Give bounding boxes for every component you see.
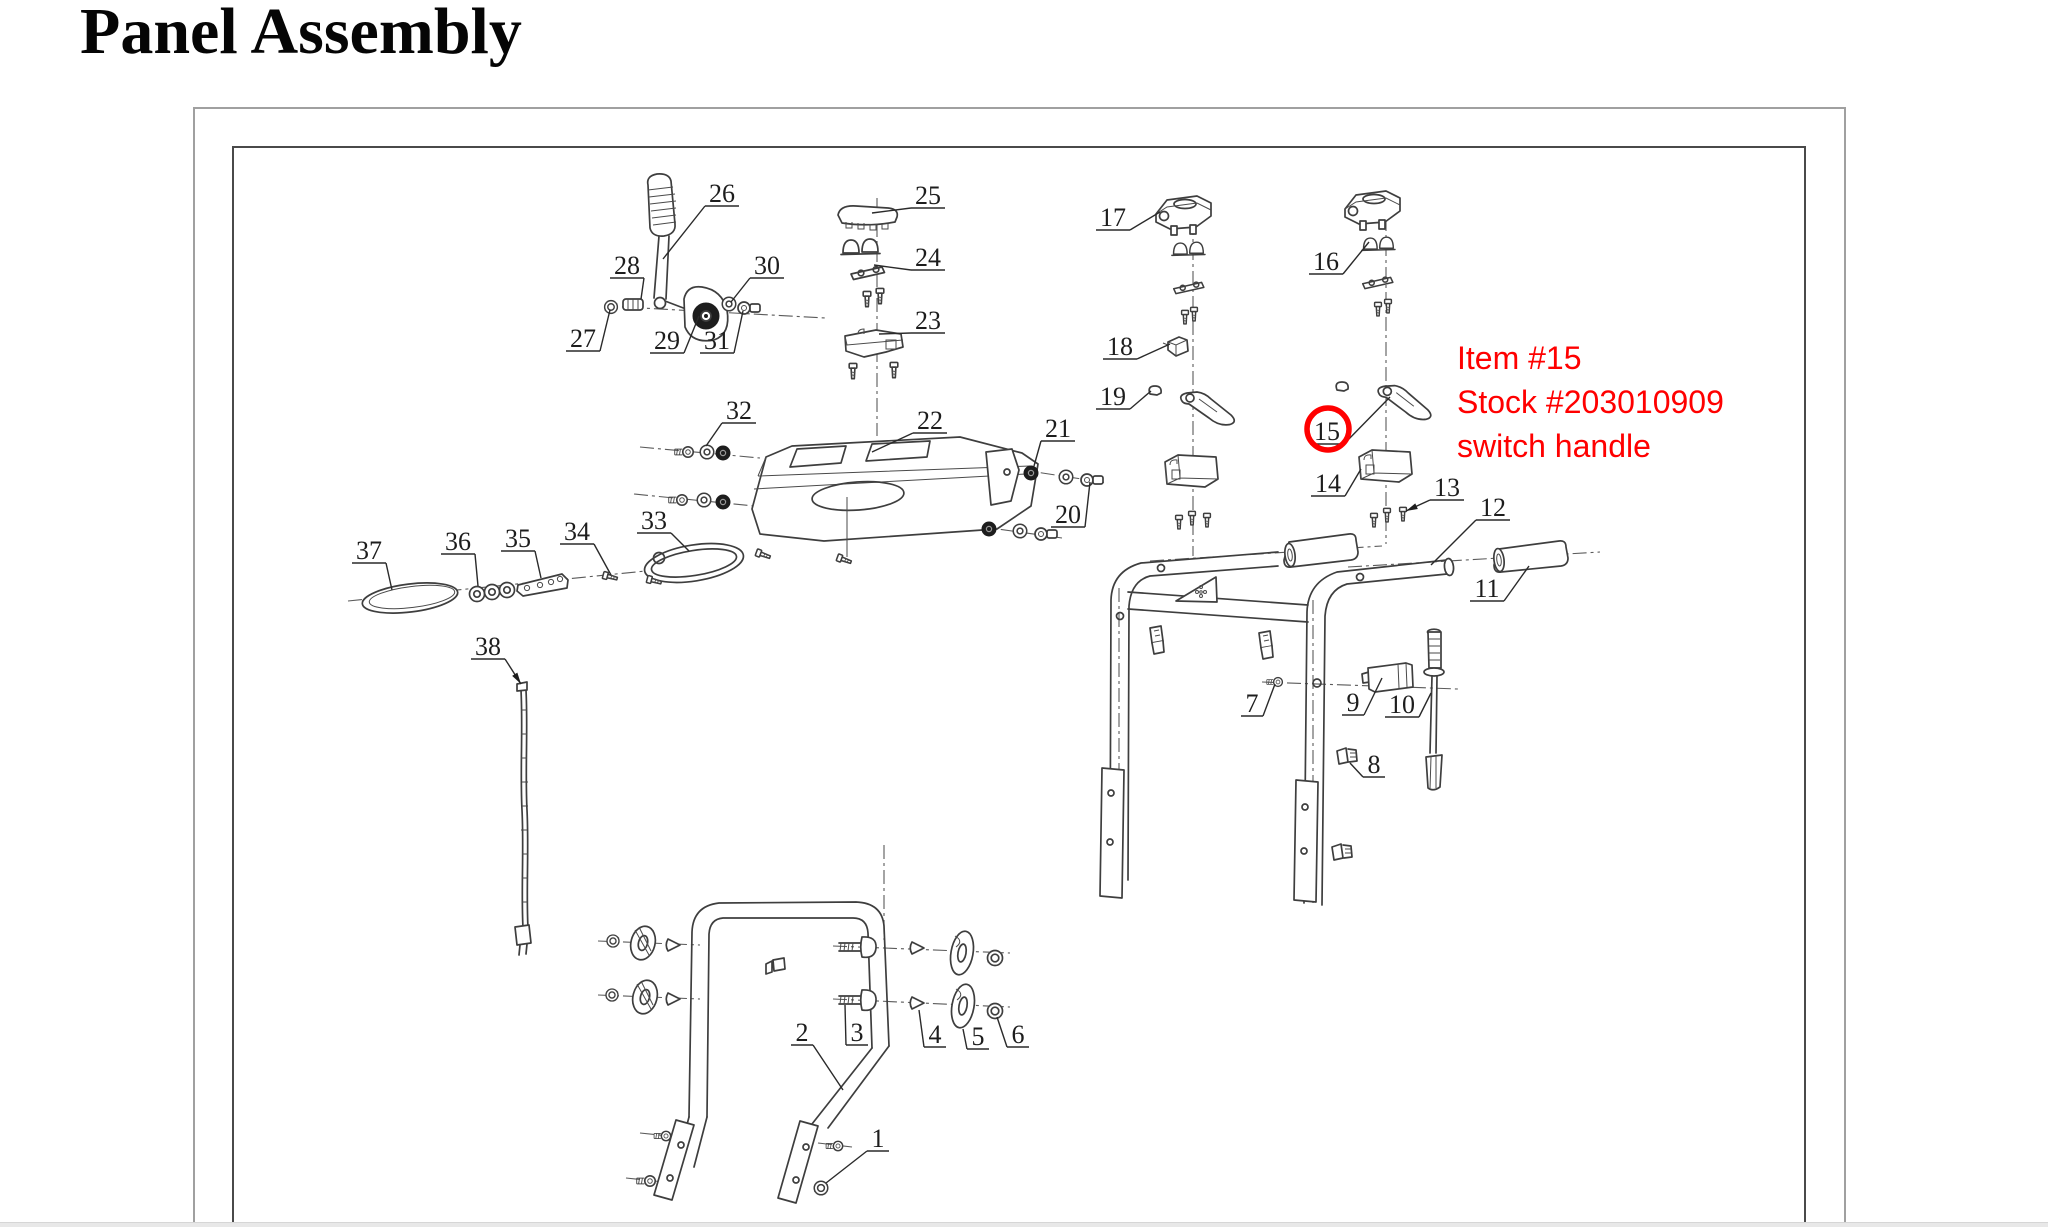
svg-text:25: 25 (915, 181, 941, 210)
svg-text:13: 13 (1434, 473, 1460, 502)
svg-text:10: 10 (1389, 690, 1415, 719)
svg-text:20: 20 (1055, 500, 1081, 529)
svg-text:33: 33 (641, 506, 667, 535)
lower-handlebar-assembly (606, 902, 1003, 1203)
exploded-parts-diagram: 1234567891011121314151617181920212223242… (0, 0, 2048, 1227)
svg-text:24: 24 (915, 243, 941, 272)
part-label-10: 10 (1385, 690, 1431, 719)
part-label-20: 20 (1051, 482, 1090, 529)
part-label-2: 2 (791, 1018, 843, 1090)
part-label-30: 30 (731, 251, 784, 302)
svg-text:26: 26 (709, 179, 735, 208)
page: Panel Assembly (0, 0, 2048, 1227)
svg-text:12: 12 (1480, 493, 1506, 522)
svg-text:8: 8 (1368, 750, 1381, 779)
panel-cover-column (838, 206, 903, 379)
svg-text:4: 4 (929, 1020, 942, 1049)
part-label-6: 6 (997, 1017, 1029, 1049)
part-label-14: 14 (1311, 469, 1361, 498)
svg-text:17: 17 (1100, 203, 1126, 232)
part-label-19: 19 (1096, 382, 1151, 411)
part-label-23: 23 (879, 306, 945, 335)
part-label-17: 17 (1096, 203, 1160, 232)
svg-text:19: 19 (1100, 382, 1126, 411)
svg-text:32: 32 (726, 396, 752, 425)
part-label-27: 27 (566, 310, 610, 353)
svg-text:28: 28 (614, 251, 640, 280)
svg-text:18: 18 (1107, 332, 1133, 361)
svg-text:1: 1 (872, 1124, 885, 1153)
part-label-38: 38 (471, 632, 521, 684)
switch-columns (1149, 191, 1432, 529)
part-label-7: 7 (1241, 684, 1275, 718)
part-label-33: 33 (637, 506, 689, 551)
svg-text:11: 11 (1474, 574, 1499, 603)
part-label-34: 34 (560, 517, 611, 575)
svg-text:23: 23 (915, 306, 941, 335)
svg-text:29: 29 (654, 326, 680, 355)
part-label-13: 13 (1406, 473, 1464, 511)
svg-text:9: 9 (1347, 688, 1360, 717)
gasket-and-bracket-row (361, 537, 747, 955)
svg-text:34: 34 (564, 517, 590, 546)
svg-text:37: 37 (356, 536, 382, 565)
part-label-1: 1 (826, 1124, 889, 1183)
svg-text:6: 6 (1012, 1020, 1025, 1049)
svg-text:7: 7 (1246, 689, 1259, 718)
svg-text:2: 2 (796, 1018, 809, 1047)
svg-text:5: 5 (972, 1022, 985, 1051)
part-label-24: 24 (874, 243, 945, 272)
part-label-32: 32 (706, 396, 756, 446)
part-label-36: 36 (441, 527, 478, 586)
window-bottom-scrollbar[interactable] (0, 1222, 2048, 1227)
svg-text:16: 16 (1313, 247, 1339, 276)
part-label-3: 3 (845, 1005, 868, 1047)
svg-text:38: 38 (475, 632, 501, 661)
svg-text:35: 35 (505, 524, 531, 553)
part-label-28: 28 (610, 251, 644, 299)
part-label-16: 16 (1309, 242, 1369, 276)
svg-text:15: 15 (1314, 417, 1340, 446)
part-label-5: 5 (963, 1022, 989, 1051)
part-label-4: 4 (919, 1010, 946, 1049)
svg-text:36: 36 (445, 527, 471, 556)
svg-text:27: 27 (570, 324, 596, 353)
part-label-37: 37 (352, 536, 392, 590)
svg-text:21: 21 (1045, 414, 1071, 443)
annotation-text: Item #15 Stock #203010909 switch handle (1457, 336, 1724, 468)
annotation-line-1: Item #15 (1457, 336, 1724, 380)
svg-text:14: 14 (1315, 469, 1341, 498)
annotation-line-2: Stock #203010909 (1457, 380, 1724, 424)
part-label-18: 18 (1103, 332, 1170, 361)
svg-text:30: 30 (754, 251, 780, 280)
svg-text:31: 31 (704, 326, 730, 355)
part-label-35: 35 (501, 524, 541, 578)
svg-text:22: 22 (917, 406, 943, 435)
svg-text:3: 3 (851, 1018, 864, 1047)
annotation-line-3: switch handle (1457, 424, 1724, 468)
part-label-21: 21 (1034, 414, 1075, 466)
